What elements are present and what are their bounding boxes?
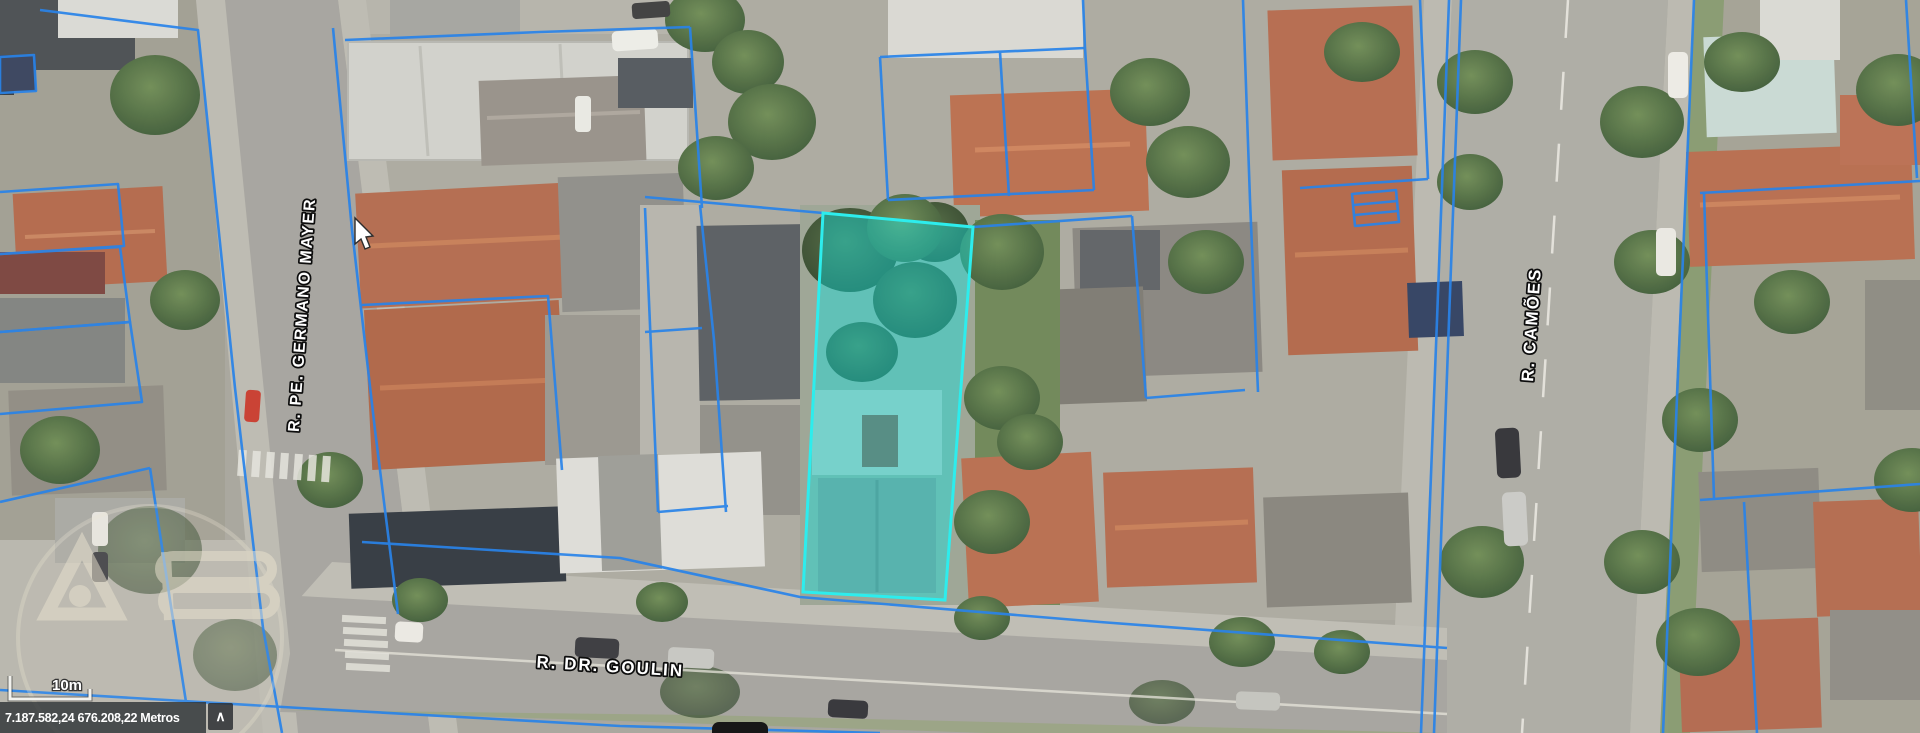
bottom-edge-window-fragment bbox=[712, 722, 768, 733]
logo-dot bbox=[69, 585, 91, 607]
selected-parcel-highlight[interactable] bbox=[803, 213, 973, 600]
map-viewport[interactable]: R. PE. GERMANO MAYER R. CAMÕES R. DR. GO… bbox=[0, 0, 1920, 733]
aerial-map-canvas[interactable]: R. PE. GERMANO MAYER R. CAMÕES R. DR. GO… bbox=[0, 0, 1920, 733]
statusbar-expand-button[interactable]: ∧ bbox=[208, 703, 233, 730]
chevron-up-icon: ∧ bbox=[215, 708, 225, 725]
coordinate-statusbar: 7.187.582,24 676.208,22 Metros bbox=[0, 702, 206, 733]
scale-bar-label: 10m bbox=[52, 677, 82, 694]
coordinate-readout: 7.187.582,24 676.208,22 Metros bbox=[5, 711, 179, 725]
